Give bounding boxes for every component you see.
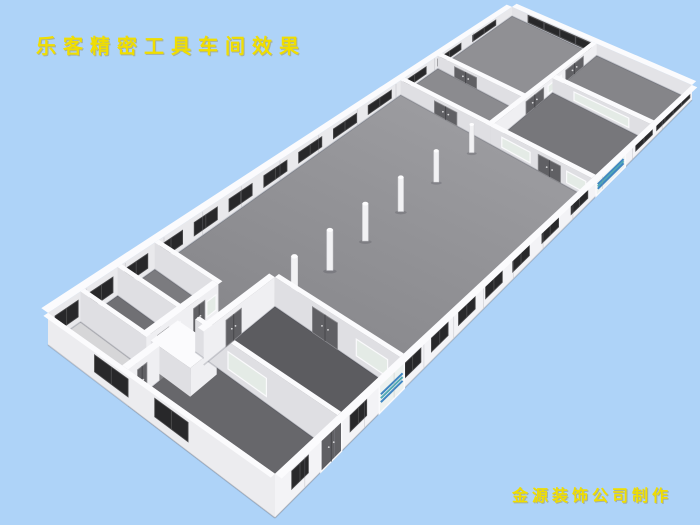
workshop-render-canvas: 乐客精密工具车间效果 金源装饰公司制作	[0, 0, 700, 525]
watermark-credit: 金源装饰公司制作	[512, 482, 672, 506]
workshop-3d-render	[0, 0, 700, 525]
watermark-title: 乐客精密工具车间效果	[36, 30, 306, 59]
